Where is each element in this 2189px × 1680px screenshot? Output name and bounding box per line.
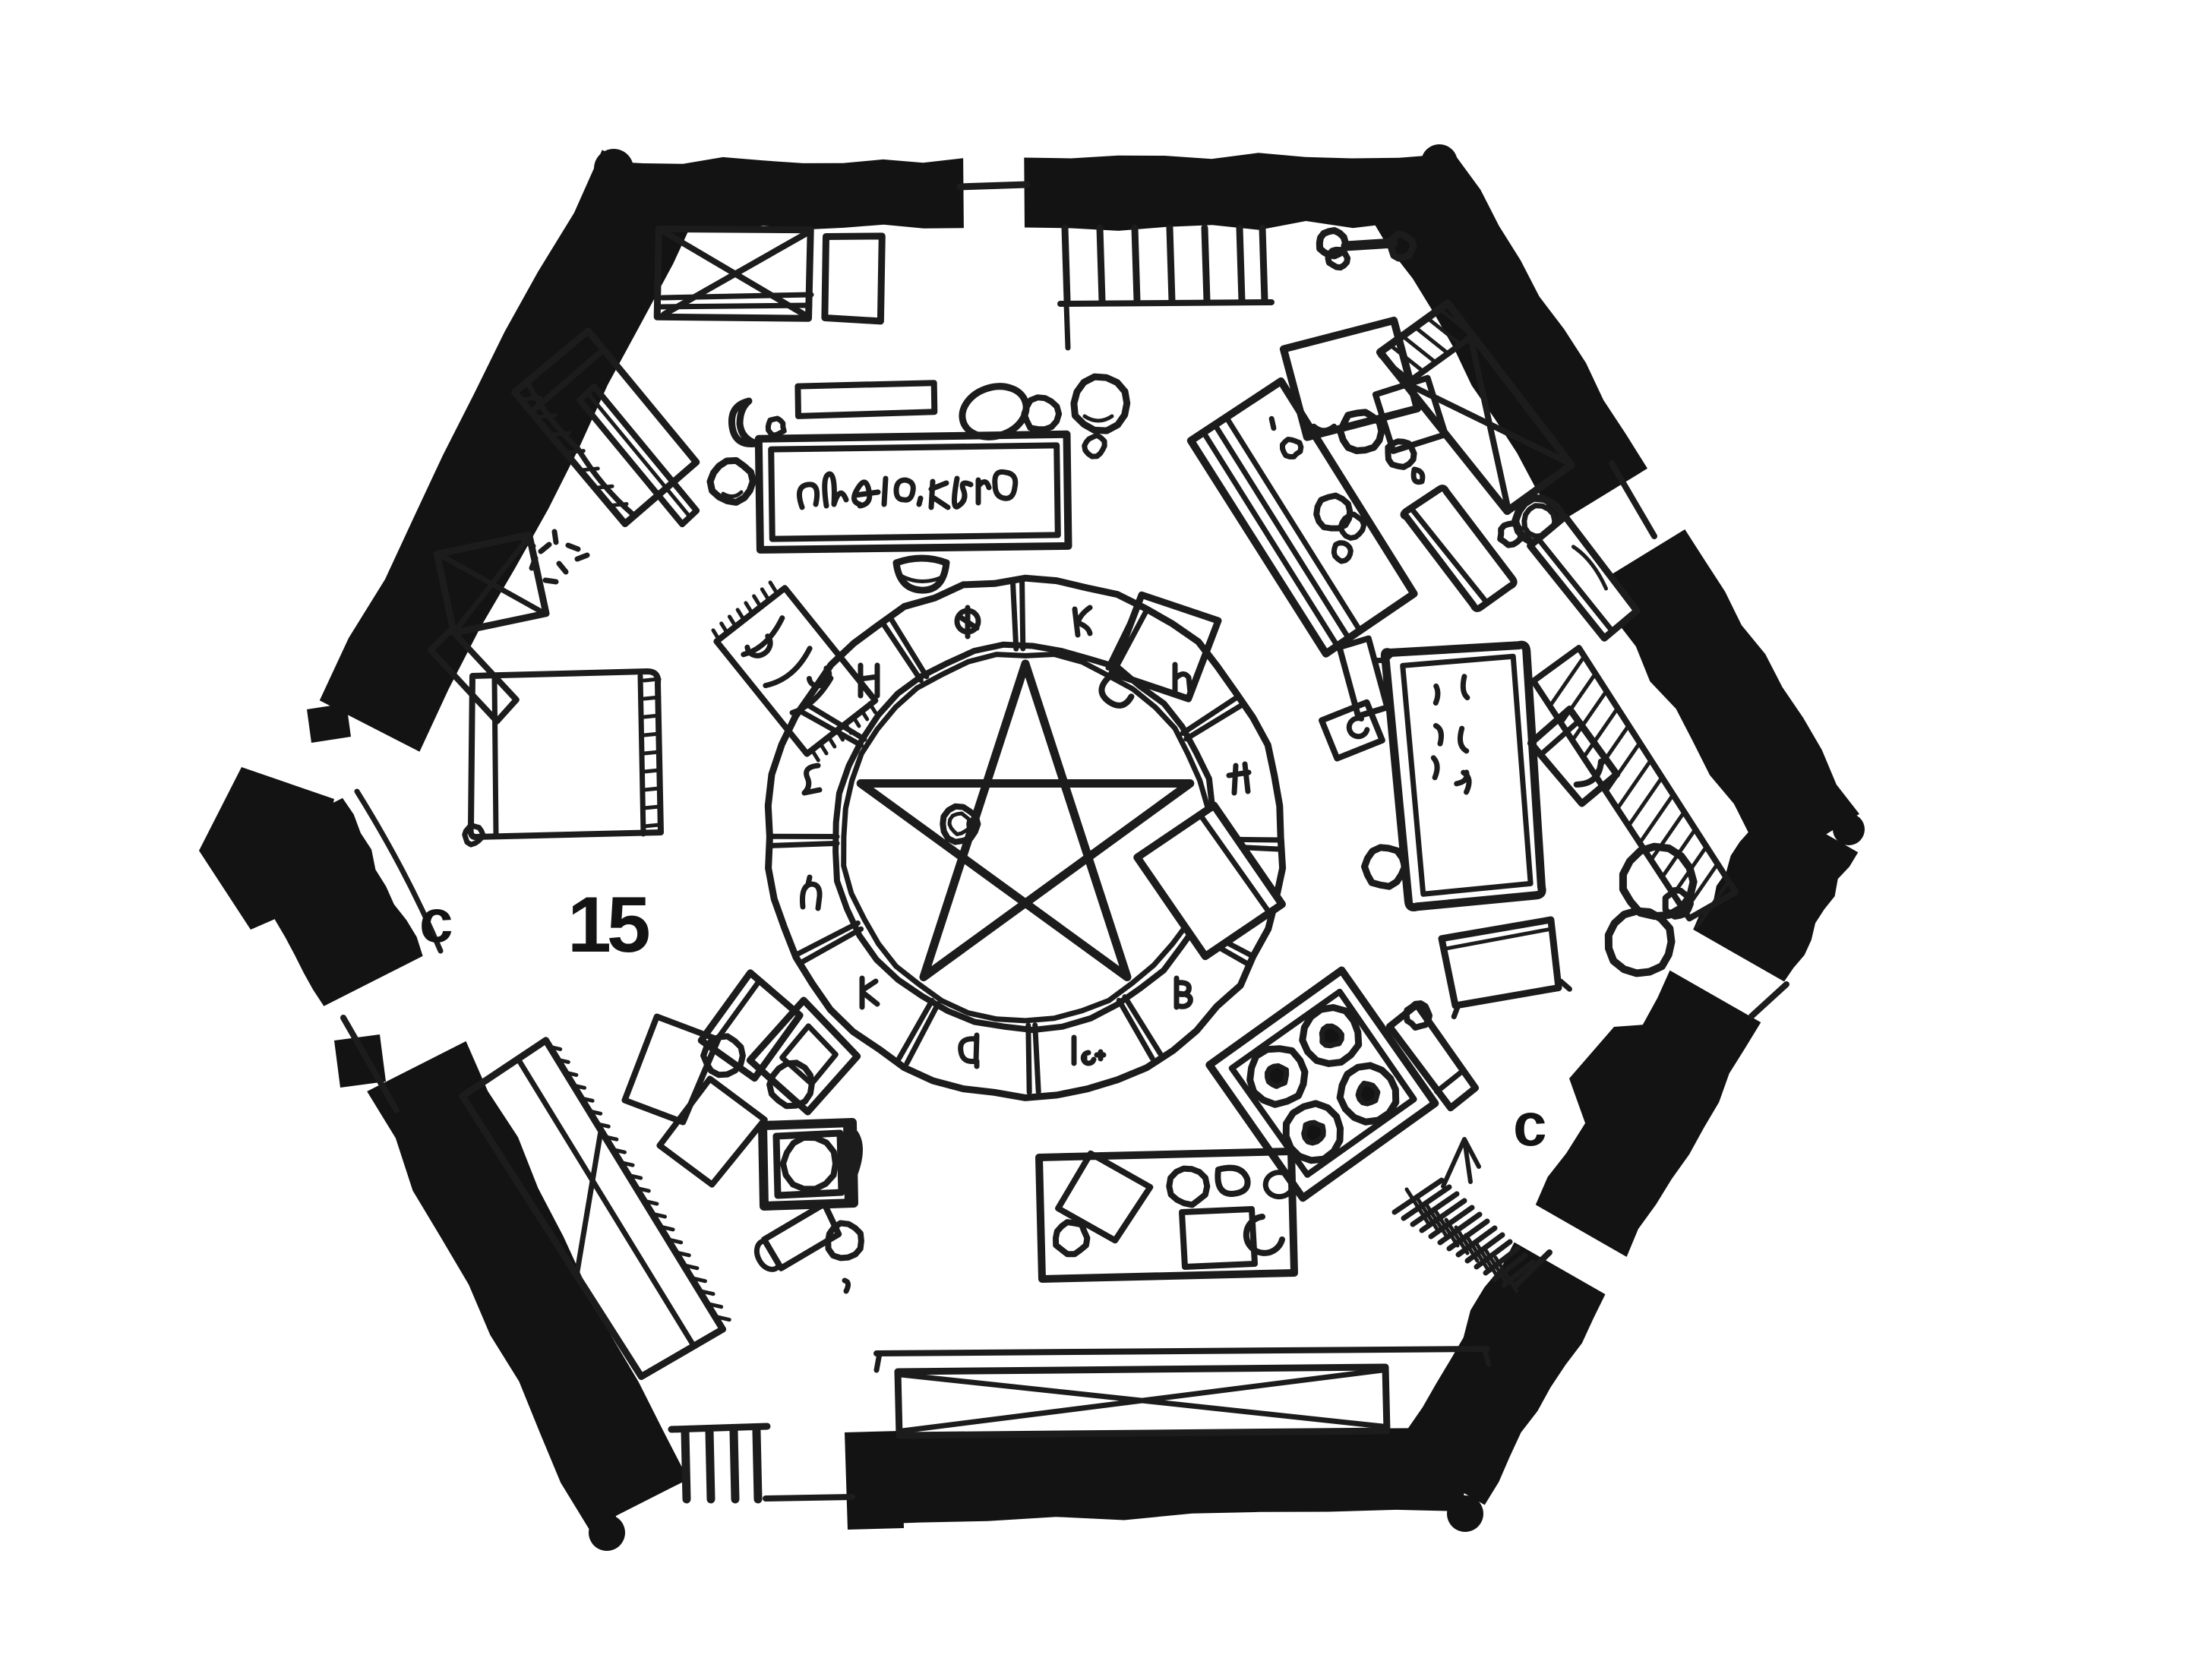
svg-text:15: 15 [567,881,649,969]
svg-text:c: c [419,887,453,955]
svg-text:c: c [1513,1091,1547,1158]
